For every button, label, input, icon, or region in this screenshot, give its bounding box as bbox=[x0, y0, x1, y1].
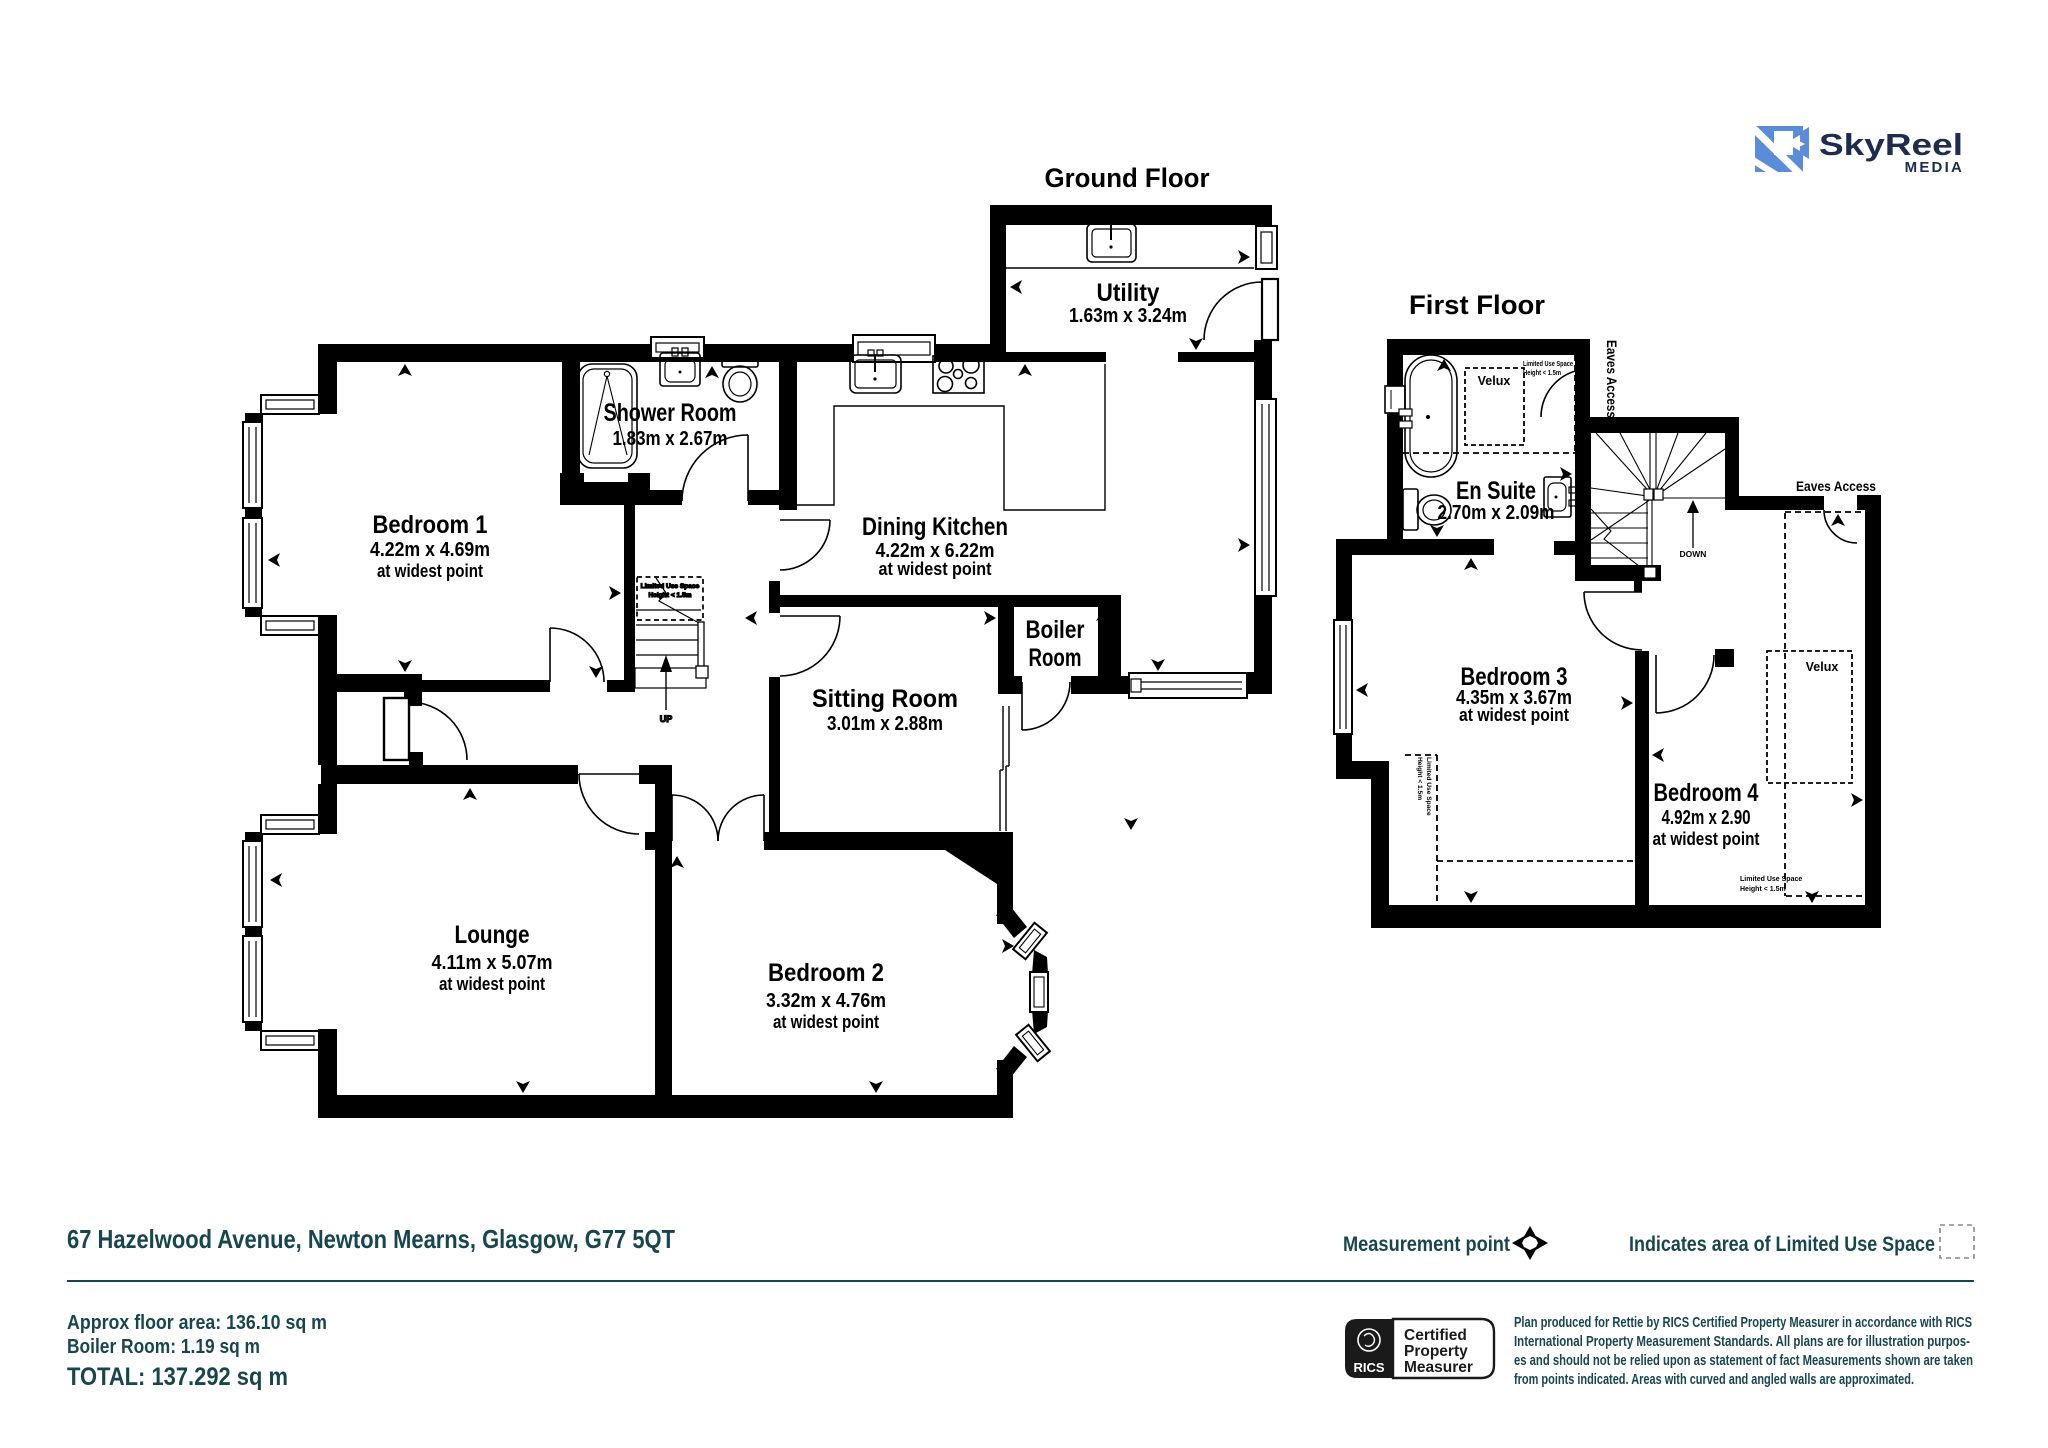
svg-text:Room: Room bbox=[1029, 644, 1082, 672]
svg-text:RICS: RICS bbox=[1353, 1360, 1384, 1375]
svg-text:Velux: Velux bbox=[1478, 374, 1511, 388]
svg-text:Limited Use Space: Limited Use Space bbox=[1425, 757, 1432, 816]
svg-text:at widest point: at widest point bbox=[773, 1011, 879, 1032]
svg-text:Certified: Certified bbox=[1404, 1327, 1467, 1344]
svg-text:Limited Use Space: Limited Use Space bbox=[1523, 361, 1573, 368]
svg-text:Bedroom 1: Bedroom 1 bbox=[373, 511, 488, 539]
svg-text:Velux: Velux bbox=[1806, 660, 1839, 674]
svg-text:4.22m x 4.69m: 4.22m x 4.69m bbox=[370, 539, 490, 561]
svg-text:4.92m x 2.90: 4.92m x 2.90 bbox=[1662, 807, 1751, 829]
svg-text:at widest point: at widest point bbox=[1653, 828, 1760, 849]
svg-text:Dining Kitchen: Dining Kitchen bbox=[862, 513, 1008, 541]
svg-text:Shower Room: Shower Room bbox=[604, 399, 737, 427]
svg-text:Limited Use Space: Limited Use Space bbox=[641, 583, 700, 590]
svg-text:Height < 1.5m: Height < 1.5m bbox=[1416, 757, 1423, 800]
svg-text:Height < 1.5m: Height < 1.5m bbox=[648, 592, 691, 599]
svg-text:Measurement point: Measurement point bbox=[1343, 1233, 1510, 1256]
svg-text:Utility: Utility bbox=[1097, 279, 1160, 307]
svg-text:at widest point: at widest point bbox=[1459, 704, 1569, 725]
svg-text:Limited Use Space: Limited Use Space bbox=[1740, 876, 1802, 883]
svg-text:at widest point: at widest point bbox=[377, 560, 483, 581]
svg-text:Eaves Access: Eaves Access bbox=[1604, 340, 1619, 418]
svg-text:2.70m x 2.09m: 2.70m x 2.09m bbox=[1438, 502, 1555, 524]
svg-text:1.83m x 2.67m: 1.83m x 2.67m bbox=[613, 428, 728, 450]
svg-text:Boiler Room: 1.19 sq m: Boiler Room: 1.19 sq m bbox=[67, 1336, 260, 1358]
svg-text:Height < 1.5m: Height < 1.5m bbox=[1523, 370, 1561, 377]
svg-text:Eaves Access: Eaves Access bbox=[1796, 479, 1876, 494]
svg-text:SkyReel: SkyReel bbox=[1819, 127, 1963, 162]
svg-text:Approx floor area: 136.10 sq m: Approx floor area: 136.10 sq m bbox=[67, 1312, 327, 1334]
svg-text:TOTAL: 137.292 sq m: TOTAL: 137.292 sq m bbox=[67, 1363, 288, 1391]
svg-text:MEDIA: MEDIA bbox=[1905, 159, 1964, 176]
svg-text:Lounge: Lounge bbox=[455, 921, 530, 949]
svg-text:Bedroom 4: Bedroom 4 bbox=[1654, 779, 1759, 807]
svg-text:at widest point: at widest point bbox=[879, 558, 992, 579]
svg-text:International Property Measur: International Property Measurement Stand… bbox=[1514, 1333, 1970, 1350]
svg-text:Height < 1.5m: Height < 1.5m bbox=[1740, 886, 1786, 893]
svg-text:Measurer: Measurer bbox=[1404, 1359, 1473, 1376]
svg-text:Plan produced for Rettie by RI: Plan produced for Rettie by RICS Certifi… bbox=[1514, 1314, 1972, 1331]
svg-text:UP: UP bbox=[660, 714, 673, 724]
svg-text:Ground Floor: Ground Floor bbox=[1045, 163, 1210, 193]
svg-text:es and should not be relied up: es and should not be relied upon as stat… bbox=[1514, 1352, 1973, 1369]
svg-text:En Suite: En Suite bbox=[1456, 477, 1536, 505]
svg-text:3.32m x 4.76m: 3.32m x 4.76m bbox=[766, 990, 886, 1012]
svg-text:67 Hazelwood Avenue, Newton Me: 67 Hazelwood Avenue, Newton Mearns, Glas… bbox=[67, 1224, 675, 1254]
svg-text:Bedroom 2: Bedroom 2 bbox=[768, 959, 884, 987]
svg-text:3.01m x 2.88m: 3.01m x 2.88m bbox=[827, 713, 943, 735]
svg-text:Boiler: Boiler bbox=[1026, 616, 1085, 644]
svg-text:DOWN: DOWN bbox=[1680, 549, 1707, 559]
svg-text:Property: Property bbox=[1404, 1343, 1468, 1360]
svg-text:First Floor: First Floor bbox=[1409, 290, 1545, 320]
svg-text:4.11m x 5.07m: 4.11m x 5.07m bbox=[432, 952, 553, 974]
svg-text:from points indicated. Areas w: from points indicated. Areas with curved… bbox=[1514, 1371, 1914, 1388]
svg-text:1.63m x 3.24m: 1.63m x 3.24m bbox=[1069, 305, 1187, 327]
svg-text:at widest point: at widest point bbox=[439, 973, 545, 994]
svg-text:Indicates area of Limited Use: Indicates area of Limited Use Space bbox=[1629, 1233, 1935, 1256]
svg-text:Sitting Room: Sitting Room bbox=[812, 685, 958, 713]
